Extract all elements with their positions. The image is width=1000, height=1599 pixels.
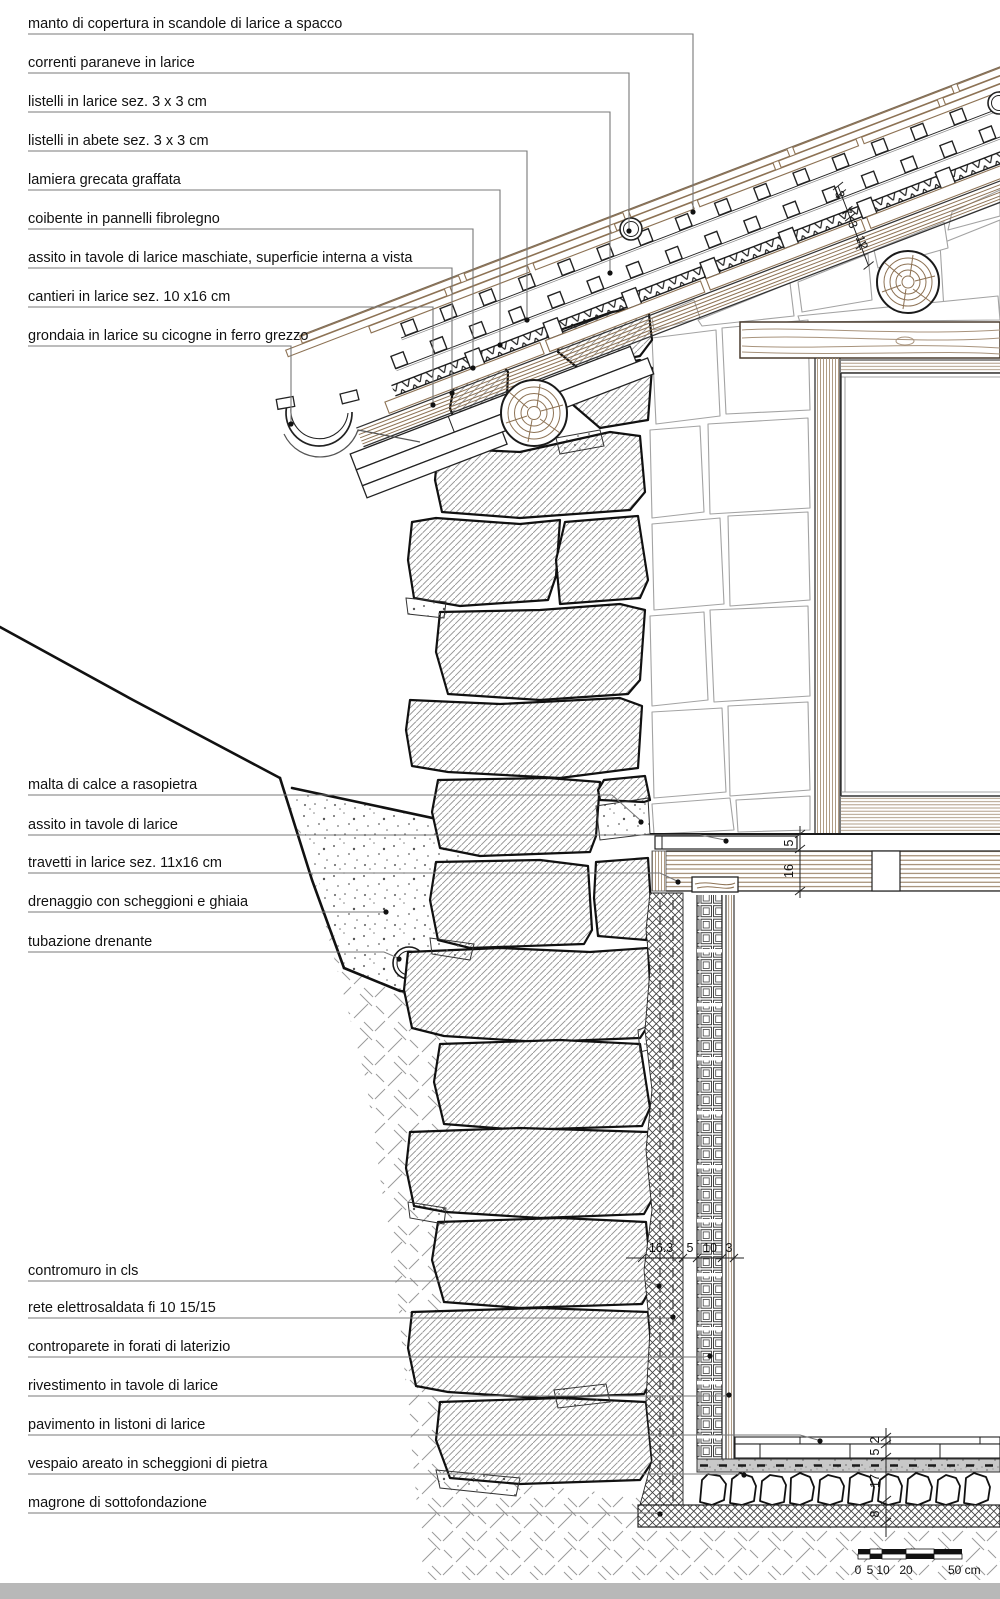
- svg-text:5: 5: [687, 1241, 694, 1255]
- svg-text:rivestimento in tavole di lari: rivestimento in tavole di larice: [28, 1378, 218, 1394]
- svg-text:assito in tavole di larice mas: assito in tavole di larice maschiate, su…: [28, 250, 413, 266]
- lintel-beam: [740, 322, 1000, 358]
- lean-concrete-footing: [638, 1505, 1000, 1527]
- svg-text:controparete in forati di late: controparete in forati di laterizio: [28, 1339, 230, 1355]
- scale-tick-label: 0: [855, 1563, 862, 1577]
- architectural-detail-page: 3 7 3 12 5 16 16.3 5 10 3 2 5 17 8 manto…: [0, 0, 1000, 1599]
- svg-text:16: 16: [782, 864, 796, 878]
- hollow-brick-wall: [697, 895, 722, 1459]
- svg-text:listelli in larice sez. 3 x 3: listelli in larice sez. 3 x 3 cm: [28, 94, 207, 110]
- scale-tick-label: 5: [867, 1563, 874, 1577]
- svg-text:17: 17: [868, 1474, 882, 1488]
- window-lining-bottom: [841, 792, 1000, 834]
- svg-text:8: 8: [868, 1510, 882, 1517]
- construction-drawing: 3 7 3 12 5 16 16.3 5 10 3 2 5 17 8 manto…: [0, 0, 1000, 1599]
- svg-text:rete elettrosaldata fi 10 15/1: rete elettrosaldata fi 10 15/15: [28, 1300, 216, 1316]
- svg-text:malta di calce a rasopietra: malta di calce a rasopietra: [28, 777, 198, 793]
- svg-text:coibente in pannelli fibrolegn: coibente in pannelli fibrolegno: [28, 211, 220, 227]
- svg-text:contromuro in cls: contromuro in cls: [28, 1263, 138, 1279]
- scale-end-label: 50 cm: [948, 1563, 981, 1577]
- window-jamb: [815, 358, 840, 834]
- wood-cladding: [726, 895, 734, 1459]
- svg-text:16.3: 16.3: [649, 1241, 673, 1255]
- svg-text:listelli in abete sez. 3 x 3 c: listelli in abete sez. 3 x 3 cm: [28, 133, 209, 149]
- svg-text:pavimento in listoni di larice: pavimento in listoni di larice: [28, 1417, 205, 1433]
- svg-text:5: 5: [782, 839, 796, 846]
- svg-text:3: 3: [726, 1241, 733, 1255]
- leader-dot: [690, 209, 695, 214]
- svg-text:drenaggio con scheggioni e ghi: drenaggio con scheggioni e ghiaia: [28, 894, 249, 910]
- svg-text:magrone di sottofondazione: magrone di sottofondazione: [28, 1495, 207, 1511]
- purlin-log-eaves: [501, 380, 567, 446]
- svg-text:vespaio areato in scheggioni d: vespaio areato in scheggioni di pietra: [28, 1456, 268, 1472]
- svg-text:travetti in larice sez. 11x16: travetti in larice sez. 11x16 cm: [28, 855, 222, 871]
- scale-tick-label: 20: [899, 1563, 913, 1577]
- joist-splice: [872, 851, 900, 891]
- page-bottom-strip: [0, 1583, 1000, 1599]
- joist-cross-section: [692, 877, 738, 892]
- svg-text:cantieri in larice sez. 10 x1: cantieri in larice sez. 10 x16 cm: [28, 289, 230, 305]
- svg-text:assito in tavole di larice: assito in tavole di larice: [28, 817, 178, 833]
- svg-text:10: 10: [703, 1241, 717, 1255]
- annotation-text: manto di copertura in scandole di larice…: [28, 16, 342, 32]
- svg-text:grondaia in larice su cicogne: grondaia in larice su cicogne in ferro g…: [28, 328, 308, 344]
- svg-text:2: 2: [868, 1436, 882, 1443]
- scale-tick-label: 10: [876, 1563, 890, 1577]
- svg-text:tubazione drenante: tubazione drenante: [28, 934, 152, 950]
- svg-text:5: 5: [868, 1448, 882, 1455]
- svg-text:lamiera grecata graffata: lamiera grecata graffata: [28, 172, 182, 188]
- purlin-log-upper: [877, 251, 939, 313]
- svg-text:correnti paraneve in larice: correnti paraneve in larice: [28, 55, 195, 71]
